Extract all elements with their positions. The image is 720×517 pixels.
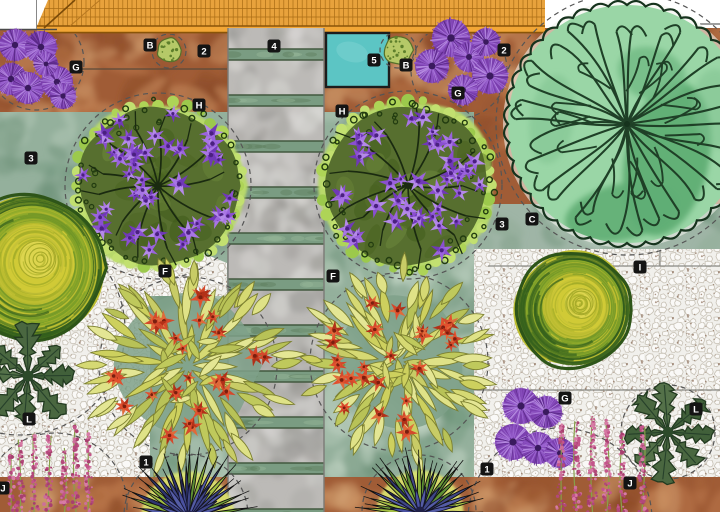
svg-text:G: G	[454, 88, 461, 99]
svg-text:3: 3	[499, 219, 504, 230]
svg-text:B: B	[403, 60, 410, 71]
svg-text:L: L	[693, 404, 699, 415]
svg-text:G: G	[72, 62, 79, 73]
svg-text:F: F	[330, 271, 336, 282]
svg-text:H: H	[196, 100, 203, 111]
svg-text:1: 1	[143, 457, 149, 468]
svg-text:L: L	[26, 414, 32, 425]
svg-text:H: H	[339, 106, 346, 117]
svg-text:1: 1	[484, 464, 490, 475]
svg-text:F: F	[162, 266, 168, 277]
svg-text:2: 2	[201, 46, 206, 57]
svg-text:C: C	[529, 214, 536, 225]
svg-text:I: I	[639, 262, 642, 273]
svg-text:3: 3	[28, 153, 33, 164]
svg-text:4: 4	[271, 41, 277, 52]
svg-text:J: J	[0, 483, 5, 494]
svg-text:2: 2	[501, 45, 506, 56]
svg-text:G: G	[561, 393, 568, 404]
svg-text:J: J	[627, 478, 632, 489]
svg-text:5: 5	[371, 55, 377, 66]
svg-text:B: B	[147, 40, 154, 51]
